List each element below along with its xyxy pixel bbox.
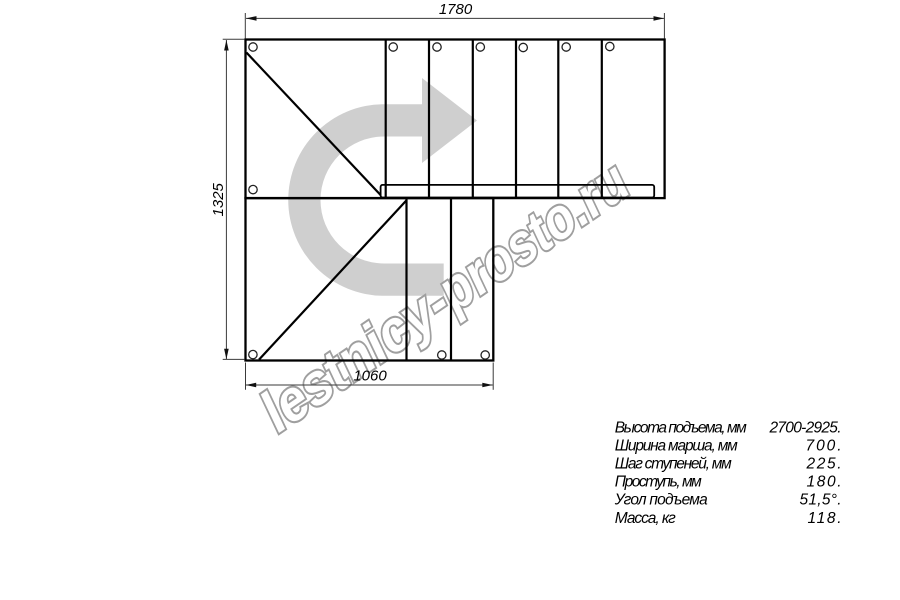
svg-text:Проступь, мм: Проступь, мм (615, 474, 702, 491)
svg-text:118.: 118. (808, 510, 842, 527)
svg-text:1060: 1060 (353, 368, 387, 385)
svg-text:1780: 1780 (439, 1, 473, 18)
svg-text:Высота подъема, мм: Высота подъема, мм (615, 419, 747, 436)
svg-text:Масса, кг: Масса, кг (615, 510, 676, 527)
svg-text:Угол подъема: Угол подъема (614, 492, 708, 509)
svg-text:1325: 1325 (210, 182, 227, 216)
svg-text:2700-2925.: 2700-2925. (769, 419, 842, 436)
svg-text:Ширина марша, мм: Ширина марша, мм (615, 437, 738, 454)
svg-text:180.: 180. (807, 474, 842, 491)
svg-text:Шаг ступеней, мм: Шаг ступеней, мм (615, 456, 732, 473)
svg-text:51,5°.: 51,5°. (800, 492, 842, 509)
